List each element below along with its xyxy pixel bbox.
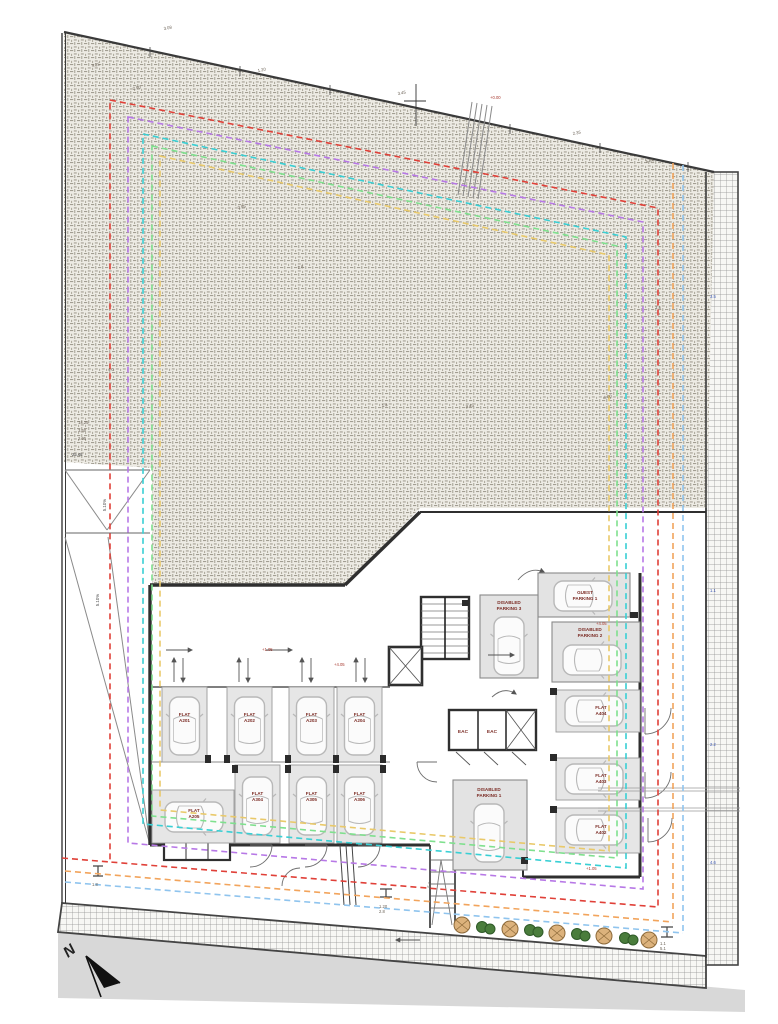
stall-label: FLAT: [306, 791, 318, 796]
dim-label: 3.5: [655, 305, 661, 310]
parking-stall: FLAT A404: [556, 690, 640, 732]
car-icon: [231, 697, 268, 755]
dim-label: 3.5: [710, 294, 716, 299]
level-mark: +0.00: [490, 95, 501, 100]
elevator: [389, 647, 422, 685]
stall-label: A203: [306, 718, 317, 723]
tree-icon: [502, 921, 518, 937]
stall-label: A403: [596, 779, 607, 784]
site-plan-page: 5.10% 5.10%: [0, 0, 778, 1024]
level-mark: +4.05: [596, 621, 607, 626]
vehicle-ramp: [65, 470, 150, 845]
parking-stall: DISABLED PARKING 3: [480, 595, 538, 678]
dim-label: 3.08: [163, 24, 173, 31]
car-icon: [565, 761, 623, 798]
car-icon: [341, 697, 378, 755]
tree-icon: [641, 932, 657, 948]
outline-red-ext: [62, 858, 110, 862]
parking-stall: FLAT A305: [289, 765, 334, 843]
stall-label: DISABLED: [477, 787, 501, 792]
dim-label: 1.20: [257, 66, 267, 73]
tree-icon: [549, 925, 565, 941]
stall-label: FLAT: [595, 824, 607, 829]
car-icon: [471, 804, 508, 862]
stall-label: FLAT: [595, 705, 607, 710]
stall-label: FLAT: [179, 712, 191, 717]
parking-stall: FLAT A204: [337, 687, 382, 762]
stall-label: FLAT: [252, 791, 264, 796]
eac-rooms: EAC EAC: [449, 710, 536, 765]
stall-label: FLAT: [306, 712, 318, 717]
stall-label: A205: [189, 814, 200, 819]
parking-stall: FLAT A202: [227, 687, 272, 762]
dim-label: 2.2: [710, 742, 716, 747]
stall-label: A304: [252, 797, 263, 802]
parking-stall: DISABLED PARKING 1: [453, 780, 527, 870]
car-icon: [563, 642, 621, 679]
stall-label: A202: [244, 718, 255, 723]
stall-label: PARKING 1: [573, 596, 598, 601]
bush-icon: [525, 925, 544, 938]
dim-label: 2.35: [572, 129, 582, 136]
stall-label: A404: [596, 711, 607, 716]
dim-label: 2.95: [78, 436, 87, 441]
stall-label: PARKING 1: [477, 793, 502, 798]
stall-label: FLAT: [354, 791, 366, 796]
parking-stall: FLAT A203: [289, 687, 334, 762]
site-plan-drawing: 5.10% 5.10%: [0, 0, 778, 1024]
stall-label: A201: [179, 718, 190, 723]
stall-label: FLAT: [188, 808, 200, 813]
level-mark: +1.05: [262, 647, 273, 652]
stall-label: A306: [354, 797, 365, 802]
car-icon: [565, 812, 623, 849]
staircase: [421, 597, 469, 659]
bush-icon: [572, 929, 591, 942]
stall-label: DISABLED: [497, 600, 521, 605]
ramp-slope-label-2: 5.10%: [95, 594, 100, 607]
fence-lines: [340, 845, 356, 905]
dim-label: 14.25: [78, 420, 89, 425]
dim-label: 4.6: [710, 860, 716, 865]
tree-icon: [454, 917, 470, 933]
dim-label: 3.60: [78, 428, 87, 433]
note-label: 5.1: [660, 946, 666, 951]
note-label: 1.8: [92, 882, 98, 887]
level-mark: +4.05: [334, 662, 345, 667]
eac-room-label-1: EAC: [458, 729, 469, 735]
car-icon: [293, 777, 330, 835]
car-icon: [293, 697, 330, 755]
stall-label: A305: [306, 797, 317, 802]
stall-label: FLAT: [244, 712, 256, 717]
stall-label: PARKING 2: [578, 633, 603, 638]
parking-stall: FLAT A403: [556, 758, 640, 800]
ramp-slope-label-1: 5.10%: [102, 499, 107, 512]
stall-label: FLAT: [354, 712, 366, 717]
parking-stall: FLAT A306: [337, 765, 382, 843]
stall-label: GUEST: [577, 590, 593, 595]
note-label: 2.8: [379, 909, 385, 914]
stall-label: DISABLED: [578, 627, 602, 632]
tree-icon: [596, 928, 612, 944]
parking-stall: DISABLED PARKING 2: [552, 622, 640, 682]
bush-icon: [620, 933, 639, 946]
stall-label: FLAT: [595, 773, 607, 778]
parking-stall: FLAT A304: [235, 765, 280, 843]
dim-label: 3.45: [397, 89, 407, 96]
dim-label: 1.1: [710, 588, 716, 593]
dim-label: 5.1: [426, 881, 432, 888]
eac-room-label-2: EAC: [487, 729, 498, 735]
stall-label: A402: [596, 830, 607, 835]
parking-stall: FLAT A201: [162, 687, 207, 762]
car-icon: [166, 697, 203, 755]
stall-label: PARKING 3: [497, 606, 522, 611]
parking-stall: FLAT A402: [556, 808, 640, 853]
stall-label: A204: [354, 718, 365, 723]
level-mark: +1.05: [586, 866, 597, 871]
dim-label: 4.0: [108, 367, 114, 372]
bush-icon: [477, 922, 496, 935]
car-icon: [491, 617, 528, 675]
dim-label: 25.48: [72, 452, 83, 457]
car-icon: [565, 693, 623, 730]
car-icon: [341, 777, 378, 835]
